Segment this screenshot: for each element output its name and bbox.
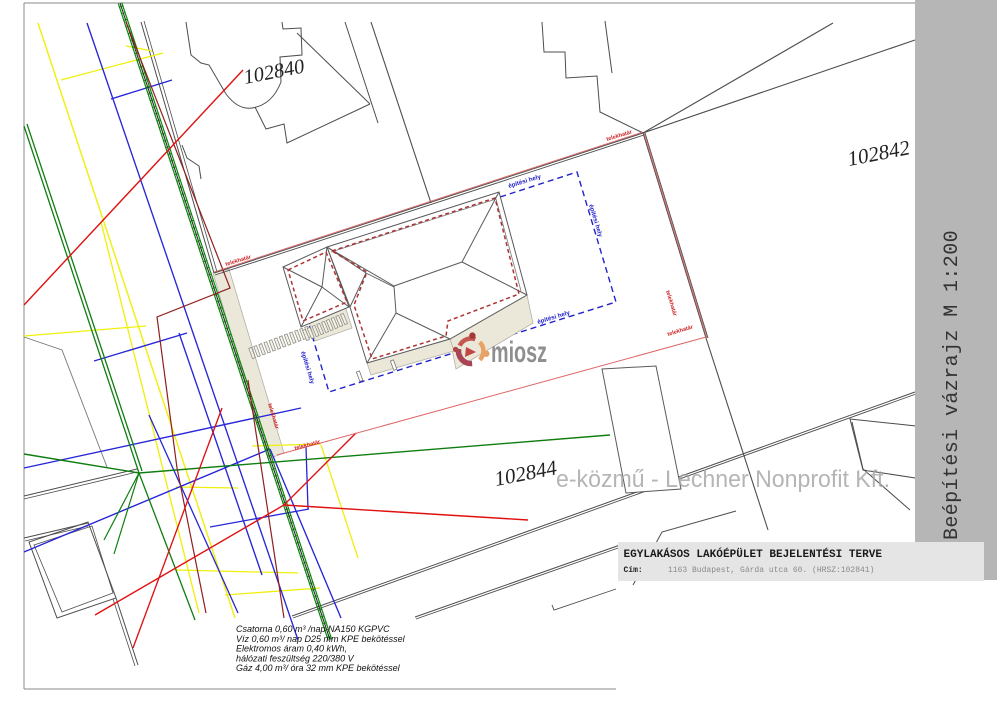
svg-text:telekhatár: telekhatár: [294, 439, 322, 452]
svg-text:telekhatár: telekhatár: [225, 254, 253, 268]
svg-text:102840: 102840: [242, 56, 307, 89]
svg-text:miosz: miosz: [491, 336, 547, 369]
svg-text:telekhatár: telekhatár: [664, 290, 678, 318]
svg-text:Gáz 4,00 m³/ óra 32 mm KPE bek: Gáz 4,00 m³/ óra 32 mm KPE bekötéssel: [236, 663, 401, 673]
svg-text:Beépítési vázrajz M 1:200: Beépítési vázrajz M 1:200: [941, 230, 964, 540]
svg-text:1163 Budapest, Gárda utca 60.: 1163 Budapest, Gárda utca 60. (HRSZ:1028…: [668, 566, 874, 575]
svg-text:EGYLAKÁSOS LAKÓÉPÜLET BEJELENT: EGYLAKÁSOS LAKÓÉPÜLET BEJELENTÉSI TERVE: [624, 547, 883, 561]
svg-text:102842: 102842: [845, 135, 912, 171]
svg-text:építési hely: építési hely: [299, 351, 316, 386]
svg-text:Víz 0,60 m³/ nap D25 mm KPE be: Víz 0,60 m³/ nap D25 mm KPE bekötéssel: [236, 634, 406, 644]
svg-text:Elektromos áram 0,40 kWh,: Elektromos áram 0,40 kWh,: [236, 644, 347, 654]
svg-text:e-közmű - Lechner Nonprofit Kf: e-közmű - Lechner Nonprofit Kft.: [556, 466, 890, 493]
svg-text:Cím:: Cím:: [624, 566, 643, 575]
svg-text:hálózati feszültség 220/380 V: hálózati feszültség 220/380 V: [236, 653, 355, 663]
svg-text:telekhatár: telekhatár: [667, 324, 695, 338]
svg-text:építési hely: építési hely: [537, 309, 572, 326]
svg-text:Csatorna 0,60 m³ /nap NA150 KG: Csatorna 0,60 m³ /nap NA150 KGPVC: [236, 624, 390, 634]
svg-text:102844: 102844: [492, 455, 559, 491]
